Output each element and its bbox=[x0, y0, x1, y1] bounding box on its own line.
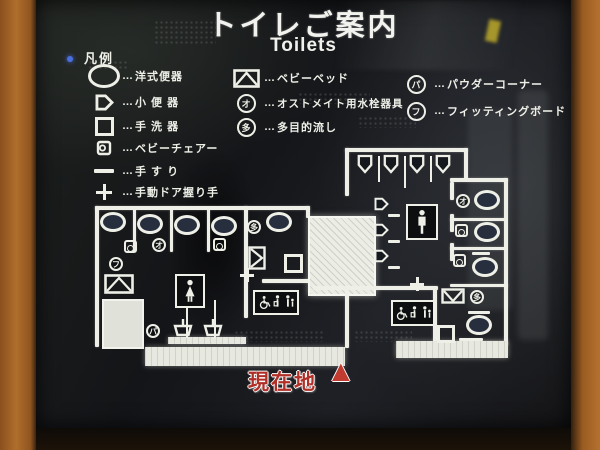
accessible-toilet-sign bbox=[253, 290, 299, 315]
toilet-fixture bbox=[174, 215, 200, 235]
hand-basin-icon bbox=[284, 254, 303, 273]
baby-chair-icon bbox=[213, 238, 226, 251]
toilet-fixture bbox=[211, 216, 237, 236]
hand-basin-icon bbox=[437, 325, 455, 343]
multipurpose-sink-circle-icon: 多 bbox=[237, 118, 256, 137]
manual-door-handle-icon bbox=[410, 277, 424, 291]
sign-subtitle-english: Toilets bbox=[36, 35, 571, 57]
toilet-fixture bbox=[137, 214, 163, 234]
urinal-icon bbox=[409, 154, 425, 174]
stall-divider bbox=[450, 218, 506, 221]
baby-bed-icon bbox=[441, 288, 465, 304]
ostomate-marker: オ bbox=[456, 194, 470, 208]
women-room-pictogram bbox=[175, 274, 205, 308]
legend-label: 手 す り bbox=[135, 163, 179, 179]
urinal-icon bbox=[383, 154, 399, 174]
wheelchair-icon bbox=[258, 295, 271, 310]
partition-post bbox=[186, 308, 188, 338]
manual-door-handle-icon bbox=[240, 268, 254, 282]
wheelchair-icon bbox=[395, 306, 408, 321]
wall bbox=[504, 178, 508, 346]
legend-label: 手動ドア握り手 bbox=[135, 184, 219, 200]
urinal-icon bbox=[86, 94, 122, 111]
wall bbox=[345, 290, 349, 348]
urinal-icon bbox=[374, 249, 389, 263]
wall bbox=[345, 148, 349, 196]
toilet-fixture bbox=[474, 190, 500, 210]
urinal-partition bbox=[430, 156, 432, 182]
toilet-fixture bbox=[472, 257, 498, 277]
legend-row: フ … フィッティングボード bbox=[398, 101, 566, 121]
urinal-partition bbox=[404, 156, 406, 188]
handrail-icon bbox=[472, 252, 490, 255]
sink-counter bbox=[168, 337, 246, 344]
western-toilet-icon bbox=[88, 64, 120, 88]
baby-bed-icon bbox=[228, 69, 264, 88]
ostomate-person-icon bbox=[273, 295, 282, 310]
handrail-icon bbox=[459, 338, 483, 341]
legend-label: 小 便 器 bbox=[135, 94, 179, 110]
wooden-wall-right bbox=[571, 0, 600, 450]
wall bbox=[95, 206, 310, 210]
wall bbox=[262, 279, 312, 283]
wall bbox=[345, 148, 468, 152]
stall-door-wall bbox=[450, 182, 454, 200]
wash-sink-icon bbox=[202, 318, 224, 338]
powder-corner-circle-icon: パ bbox=[407, 75, 426, 94]
legend-row: … 手動ドア握り手 bbox=[86, 182, 219, 202]
urinal-icon bbox=[357, 154, 373, 174]
parent-child-icon bbox=[421, 306, 432, 321]
ostomate-person-icon bbox=[410, 306, 419, 321]
baby-chair-icon bbox=[455, 224, 468, 237]
legend-row: … 手 洗 器 bbox=[86, 116, 179, 136]
legend-label: 洋式便器 bbox=[135, 68, 183, 84]
baby-chair-icon bbox=[124, 240, 137, 253]
photo-of-toilet-guide-sign: トイレご案内 Toilets 凡例 … 洋式便器 … 小 便 器 … 手 洗 器… bbox=[0, 0, 600, 450]
handrail-icon bbox=[388, 214, 400, 217]
handrail-icon bbox=[388, 266, 400, 269]
wall bbox=[464, 148, 468, 180]
legend-label: 手 洗 器 bbox=[135, 118, 179, 134]
urinal-icon bbox=[374, 223, 389, 237]
baby-chair-icon bbox=[86, 140, 122, 156]
toilet-fixture bbox=[466, 315, 492, 335]
fitting-board-circle-icon: フ bbox=[407, 102, 426, 121]
glass-reflection bbox=[518, 90, 548, 340]
wash-sink-icon bbox=[172, 318, 194, 338]
braille-dots bbox=[234, 330, 324, 342]
ostomate-circle-icon: オ bbox=[237, 94, 256, 113]
legend-row: パ … パウダーコーナー bbox=[398, 74, 543, 94]
legend-label: フィッティングボード bbox=[447, 103, 566, 119]
wall bbox=[95, 206, 99, 347]
legend-row: … 小 便 器 bbox=[86, 92, 179, 112]
handrail-icon bbox=[468, 311, 490, 314]
legend-row: オ … オストメイト用水栓器具 bbox=[228, 93, 404, 113]
legend-row: … ベビーベッド bbox=[228, 68, 349, 88]
urinal-icon bbox=[435, 154, 451, 174]
hand-basin-icon bbox=[95, 117, 114, 136]
baby-chair-icon bbox=[453, 254, 466, 267]
stall-divider bbox=[207, 208, 210, 252]
current-location-marker: ▲ bbox=[326, 355, 356, 389]
toilet-guide-sign: トイレご案内 Toilets 凡例 … 洋式便器 … 小 便 器 … 手 洗 器… bbox=[36, 0, 571, 428]
stall-door-wall bbox=[450, 214, 454, 232]
legend-label: ベビーベッド bbox=[277, 70, 349, 86]
baby-bed-icon bbox=[104, 274, 134, 294]
urinal-partition bbox=[378, 156, 380, 182]
multipurpose-sink-marker: 多 bbox=[470, 290, 484, 304]
parent-child-icon bbox=[284, 295, 295, 310]
urinal-icon bbox=[374, 197, 389, 211]
current-location-label: 現在地 bbox=[248, 366, 317, 396]
legend-row: … ベビーチェアー bbox=[86, 138, 218, 158]
legend-label: パウダーコーナー bbox=[447, 76, 543, 92]
stall-divider bbox=[170, 208, 173, 252]
wooden-wall-left bbox=[0, 0, 36, 450]
hatched-area bbox=[308, 216, 376, 296]
toilet-fixture bbox=[474, 222, 500, 242]
legend-label: オストメイト用水栓器具 bbox=[277, 96, 404, 111]
legend-row: 多 … 多目的流し bbox=[228, 117, 337, 137]
handrail-icon bbox=[94, 169, 114, 173]
stall-divider bbox=[450, 247, 506, 250]
handrail-icon bbox=[388, 240, 400, 243]
counter-block bbox=[102, 299, 144, 349]
men-room-pictogram bbox=[406, 204, 438, 240]
toilet-fixture bbox=[266, 212, 292, 232]
walkway-band bbox=[396, 341, 508, 358]
multipurpose-sink-marker: 多 bbox=[247, 220, 261, 234]
partition-post bbox=[214, 300, 216, 338]
legend-row: … 手 す り bbox=[86, 161, 179, 181]
powder-corner-marker: パ bbox=[146, 324, 160, 338]
fitting-board-marker: フ bbox=[109, 257, 123, 271]
baby-bed-icon bbox=[248, 246, 266, 270]
legend-label: ベビーチェアー bbox=[135, 140, 218, 156]
legend-row: … 洋式便器 bbox=[86, 66, 183, 86]
accessible-toilet-sign bbox=[391, 300, 435, 326]
wall bbox=[450, 178, 508, 182]
toilet-fixture bbox=[100, 212, 126, 232]
ostomate-marker: オ bbox=[152, 238, 166, 252]
legend-label: 多目的流し bbox=[277, 119, 337, 135]
floor-shadow bbox=[36, 428, 571, 450]
manual-door-handle-icon bbox=[96, 184, 112, 200]
wall bbox=[450, 284, 508, 287]
walkway-band bbox=[145, 347, 345, 366]
